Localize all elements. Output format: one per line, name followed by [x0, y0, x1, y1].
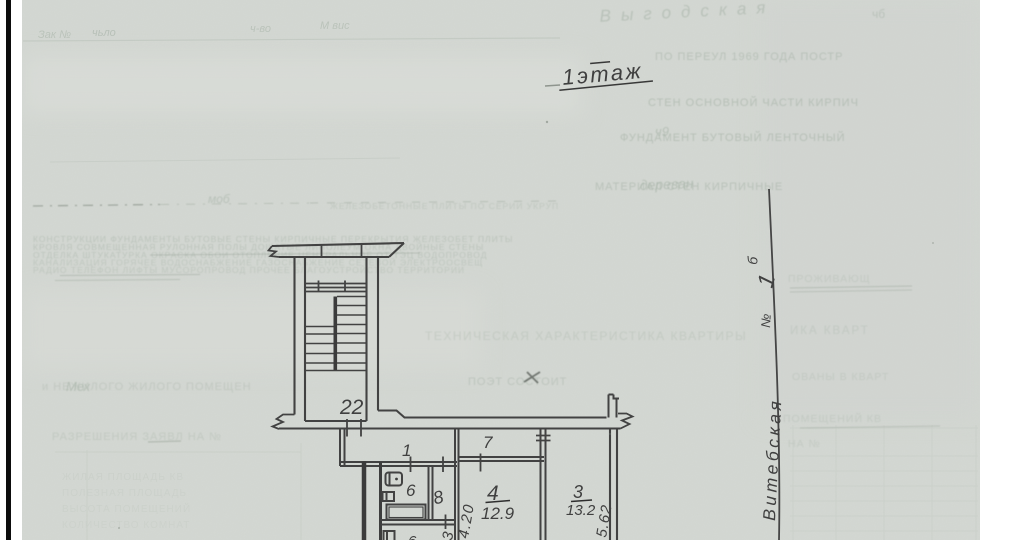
svg-text:М вис: М вис — [320, 20, 350, 32]
svg-text:моб: моб — [208, 192, 231, 206]
svg-text:3: 3 — [573, 482, 583, 502]
svg-text:Зак №: Зак № — [38, 29, 71, 41]
svg-text:7: 7 — [483, 433, 493, 452]
svg-text:ФУНДАМЕНТ БУТОВЫЙ ЛЕНТОЧНЫЙ: ФУНДАМЕНТ БУТОВЫЙ ЛЕНТОЧНЫЙ — [620, 131, 846, 144]
svg-text:чьло: чьло — [92, 27, 116, 39]
svg-text:Мех: Мех — [66, 379, 90, 394]
svg-text:12.9: 12.9 — [481, 504, 515, 523]
svg-text:СТЕН ОСНОВНОЙ ЧАСТИ КИРПИЧ: СТЕН ОСНОВНОЙ ЧАСТИ КИРПИЧ — [648, 96, 859, 109]
svg-text:чб: чб — [872, 7, 885, 21]
svg-text:ч-во: ч-во — [250, 23, 271, 35]
svg-text:ПО ПЕРЕУЛ 1969 ГОДА ПОСТР: ПО ПЕРЕУЛ 1969 ГОДА ПОСТР — [655, 51, 843, 63]
svg-text:РАЗРЕШЕНИЯ ЗАЯВЛ НА №: РАЗРЕШЕНИЯ ЗАЯВЛ НА № — [52, 431, 222, 443]
svg-text:ПОЛЕЗНАЯ ПЛОЩАДЬ: ПОЛЕЗНАЯ ПЛОЩАДЬ — [62, 488, 187, 499]
svg-text:13.2: 13.2 — [566, 502, 596, 519]
svg-text:6: 6 — [406, 481, 416, 500]
svg-text:РАДИО ТЕЛЕФОН ЛИФТЫ МУСОРОПРОВ: РАДИО ТЕЛЕФОН ЛИФТЫ МУСОРОПРОВОД ПРОЧЕЕ … — [33, 264, 465, 275]
svg-text:ОВАНЫ В КВАРТ: ОВАНЫ В КВАРТ — [792, 371, 889, 383]
svg-text:ПРОЖИВАЮЩ: ПРОЖИВАЮЩ — [788, 273, 871, 285]
svg-text:6: 6 — [408, 533, 417, 540]
svg-text:ВЫСОТА ПОМЕЩЕНИЙ: ВЫСОТА ПОМЕЩЕНИЙ — [62, 502, 191, 515]
svg-text:ИКА КВАРТ: ИКА КВАРТ — [790, 325, 870, 337]
svg-text:ТЕХНИЧЕСКАЯ ХАРАКТЕРИСТИКА КВА: ТЕХНИЧЕСКАЯ ХАРАКТЕРИСТИКА КВАРТИРЫ — [425, 329, 747, 343]
svg-text:1: 1 — [402, 441, 411, 460]
svg-text:ЖИЛАЯ ПЛОЩАДЬ КВ: ЖИЛАЯ ПЛОЩАДЬ КВ — [62, 472, 184, 483]
svg-text:ч9: ч9 — [655, 124, 669, 139]
svg-text:№: № — [758, 313, 774, 328]
svg-text:22: 22 — [339, 396, 364, 419]
svg-text:КОЛИЧЕСТВО КОМНАТ: КОЛИЧЕСТВО КОМНАТ — [62, 520, 190, 531]
svg-text:дереван: дереван — [640, 175, 694, 193]
svg-text:ПОЭТ СОСТОИТ: ПОЭТ СОСТОИТ — [468, 376, 567, 388]
svg-text:ПОМЕЩЕНИЙ КВ: ПОМЕЩЕНИЙ КВ — [783, 412, 882, 425]
svg-text:ЖЕЛЕЗОБЕТОННЫЕ ПЛИТЫ ПО СЕРИИ: ЖЕЛЕЗОБЕТОННЫЕ ПЛИТЫ ПО СЕРИИ УКРУП — [330, 201, 559, 211]
